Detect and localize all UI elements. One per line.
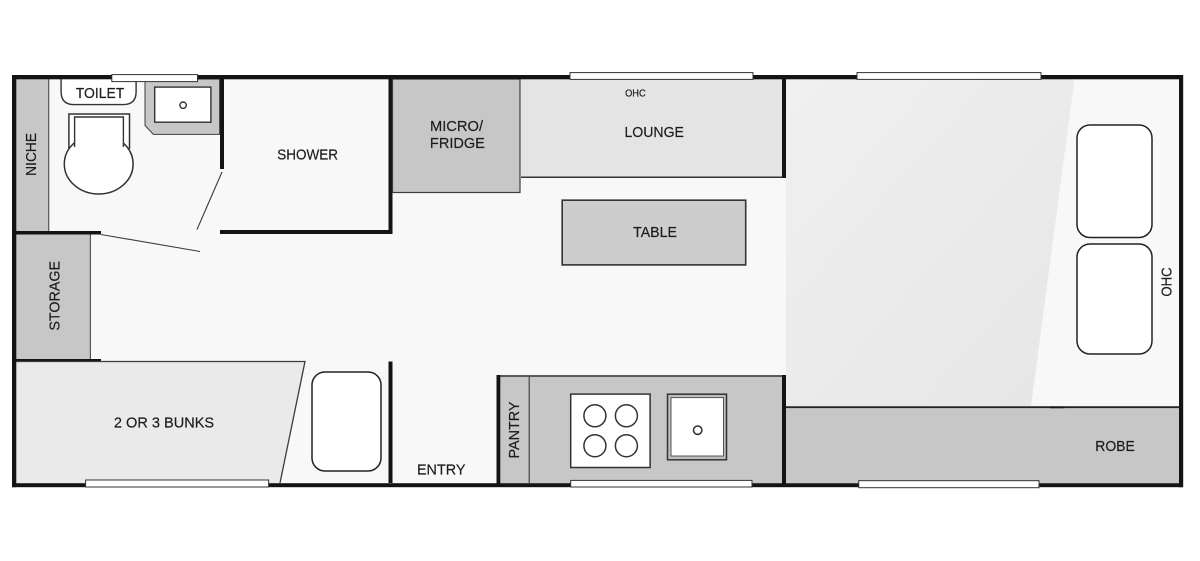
svg-text:FRIDGE: FRIDGE xyxy=(430,136,485,152)
svg-text:ROBE: ROBE xyxy=(1095,438,1135,455)
svg-text:NICHE: NICHE xyxy=(23,133,40,176)
svg-text:PANTRY: PANTRY xyxy=(507,401,523,458)
svg-text:OHC: OHC xyxy=(1157,267,1174,296)
svg-text:TABLE: TABLE xyxy=(633,225,677,241)
svg-text:MICRO/: MICRO/ xyxy=(430,119,484,135)
svg-text:OHC: OHC xyxy=(625,88,646,99)
svg-text:2 OR 3 BUNKS: 2 OR 3 BUNKS xyxy=(114,415,214,431)
svg-text:LOUNGE: LOUNGE xyxy=(624,125,684,141)
svg-text:TOILET: TOILET xyxy=(76,85,125,102)
svg-text:STORAGE: STORAGE xyxy=(47,261,63,331)
svg-text:ENTRY: ENTRY xyxy=(417,462,466,478)
svg-text:SHOWER: SHOWER xyxy=(277,147,338,164)
